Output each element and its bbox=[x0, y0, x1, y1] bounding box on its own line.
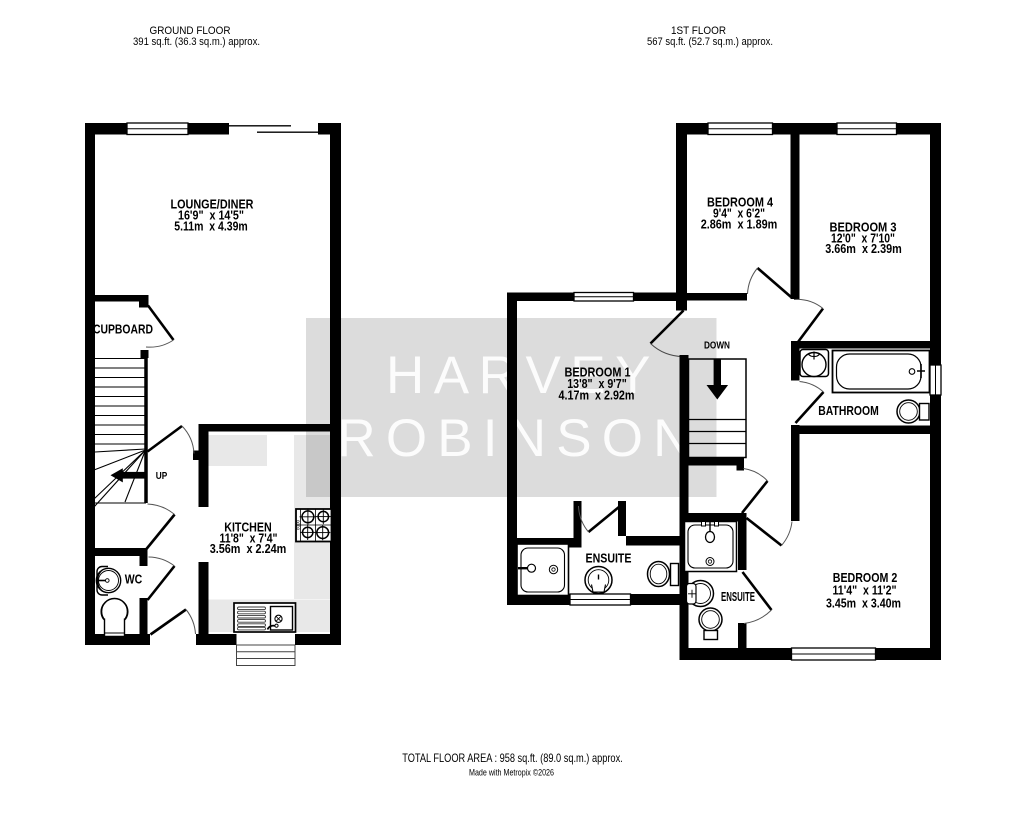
svg-text:UP: UP bbox=[156, 471, 168, 482]
svg-text:Made with Metropix ©2026: Made with Metropix ©2026 bbox=[469, 768, 554, 779]
svg-text:TOTAL FLOOR AREA : 958 sq.ft.: TOTAL FLOOR AREA : 958 sq.ft. (89.0 sq.m… bbox=[402, 751, 623, 765]
svg-text:DOWN: DOWN bbox=[704, 341, 730, 352]
svg-text:3.45m x 3.40m: 3.45m x 3.40m bbox=[826, 597, 901, 611]
svg-text:CUPBOARD: CUPBOARD bbox=[93, 323, 153, 337]
svg-text:391 sq.ft. (36.3 sq.m.) approx: 391 sq.ft. (36.3 sq.m.) approx. bbox=[133, 36, 260, 48]
svg-text:ENSUITE: ENSUITE bbox=[586, 552, 632, 566]
svg-text:ROBINSON: ROBINSON bbox=[337, 409, 701, 468]
svg-text:ENSUITE: ENSUITE bbox=[721, 590, 755, 604]
svg-text:WC: WC bbox=[125, 573, 143, 587]
svg-text:11'4" x 11'2": 11'4" x 11'2" bbox=[833, 584, 897, 598]
svg-text:6000: 6000 bbox=[296, 519, 301, 530]
svg-text:BATHROOM: BATHROOM bbox=[818, 404, 879, 418]
svg-text:3.66m x 2.39m: 3.66m x 2.39m bbox=[825, 242, 902, 256]
svg-text:3.56m x 2.24m: 3.56m x 2.24m bbox=[210, 542, 287, 556]
svg-text:5.11m x 4.39m: 5.11m x 4.39m bbox=[174, 220, 248, 234]
svg-text:2.86m x 1.89m: 2.86m x 1.89m bbox=[701, 218, 778, 232]
svg-text:4.17m x 2.92m: 4.17m x 2.92m bbox=[559, 389, 635, 403]
svg-text:567 sq.ft. (52.7 sq.m.) approx: 567 sq.ft. (52.7 sq.m.) approx. bbox=[647, 36, 773, 48]
